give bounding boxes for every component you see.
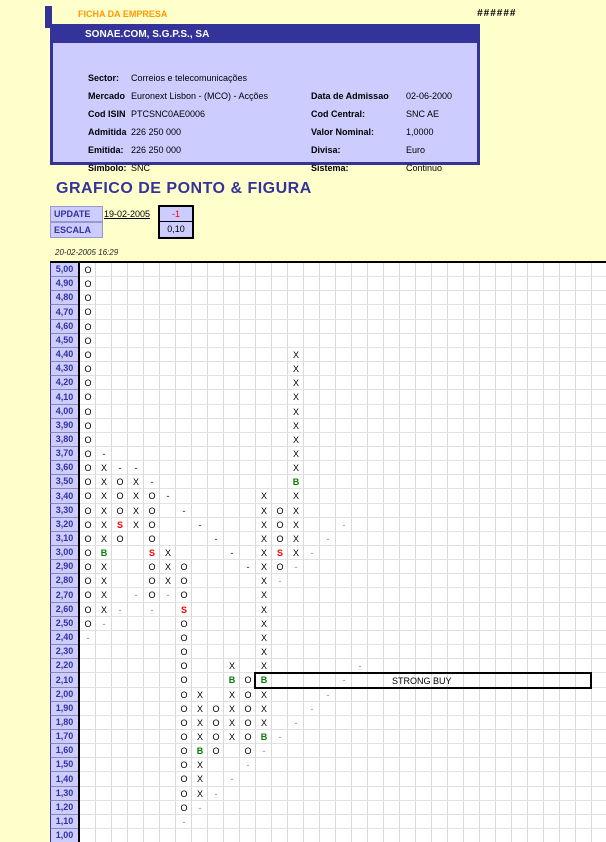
pf-symbol: O bbox=[208, 702, 224, 716]
parameter-box: -1 0,10 bbox=[158, 205, 194, 239]
price-tick-label: 1,20 bbox=[50, 801, 78, 815]
pf-symbol: X bbox=[192, 758, 208, 772]
pf-symbol: O bbox=[208, 744, 224, 758]
pf-symbol: O bbox=[80, 305, 96, 320]
price-tick-label: 2,10 bbox=[50, 673, 78, 688]
pf-symbol: X bbox=[256, 504, 272, 518]
pf-symbol: O bbox=[80, 546, 96, 560]
sell-signal-marker: S bbox=[112, 518, 128, 532]
trendline-dash: - bbox=[128, 588, 144, 603]
price-tick-label: 2,60 bbox=[50, 603, 78, 617]
trendline-dash: - bbox=[304, 702, 320, 716]
pf-symbol: O bbox=[176, 716, 192, 730]
price-tick-label: 3,50 bbox=[50, 475, 78, 489]
pf-symbol: O bbox=[176, 801, 192, 815]
trendline-dash: - bbox=[320, 688, 336, 702]
info-value-right: Euro bbox=[406, 145, 425, 155]
pf-symbol: X bbox=[96, 461, 112, 475]
sell-signal-marker: S bbox=[144, 546, 160, 560]
trendline-dash: - bbox=[208, 532, 224, 546]
pf-symbol: O bbox=[80, 362, 96, 376]
gridline-horizontal bbox=[80, 828, 606, 829]
trendline-dash: - bbox=[272, 730, 288, 744]
pf-symbol: O bbox=[176, 588, 192, 603]
info-value-right: SNC AE bbox=[406, 109, 439, 119]
update-date-value[interactable]: 19-02-2005 bbox=[104, 209, 150, 219]
info-value: Correios e telecomunicações bbox=[131, 73, 247, 83]
info-value-right: 1,0000 bbox=[406, 127, 434, 137]
pf-symbol: O bbox=[144, 532, 160, 546]
price-tick-label: 3,30 bbox=[50, 504, 78, 518]
price-tick-label: 1,10 bbox=[50, 815, 78, 829]
info-value: 226 250 000 bbox=[131, 145, 181, 155]
pf-symbol: O bbox=[80, 489, 96, 504]
pf-symbol: O bbox=[80, 291, 96, 305]
pf-symbol: X bbox=[96, 603, 112, 617]
pf-symbol: O bbox=[80, 532, 96, 546]
pf-symbol: O bbox=[80, 320, 96, 334]
pf-symbol: X bbox=[128, 518, 144, 532]
gridline-horizontal bbox=[80, 771, 606, 772]
page-title: GRAFICO DE PONTO & FIGURA bbox=[56, 180, 312, 198]
trendline-dash: - bbox=[96, 447, 112, 461]
gridline-horizontal bbox=[80, 757, 606, 758]
gridline-horizontal bbox=[80, 460, 606, 461]
info-label: Emitida: bbox=[88, 145, 124, 155]
pf-symbol: X bbox=[256, 716, 272, 730]
pf-symbol: X bbox=[128, 475, 144, 489]
price-tick-label: 2,00 bbox=[50, 688, 78, 702]
pf-symbol: X bbox=[192, 772, 208, 787]
pf-symbol: X bbox=[288, 433, 304, 447]
pf-symbol: X bbox=[256, 532, 272, 546]
pf-symbol: O bbox=[80, 588, 96, 603]
price-tick-label: 1,50 bbox=[50, 758, 78, 772]
update-offset-cell[interactable]: -1 bbox=[160, 207, 192, 222]
gridline-horizontal bbox=[80, 800, 606, 801]
price-tick-label: 3,90 bbox=[50, 419, 78, 433]
cell-overflow-hashes: ###### bbox=[477, 8, 516, 19]
trendline-dash: - bbox=[304, 546, 320, 560]
chart-top-border bbox=[50, 261, 606, 263]
trendline-dash: - bbox=[128, 461, 144, 475]
pf-symbol: O bbox=[80, 447, 96, 461]
pf-symbol: X bbox=[96, 475, 112, 489]
pf-symbol: X bbox=[224, 730, 240, 744]
pf-symbol: O bbox=[144, 560, 160, 574]
info-label-right: Sistema: bbox=[311, 163, 349, 173]
pf-symbol: O bbox=[112, 532, 128, 546]
pf-symbol: X bbox=[288, 546, 304, 560]
price-tick-label: 2,40 bbox=[50, 631, 78, 645]
spreadsheet-page: { "header": { "corner_label": "FICHA DA … bbox=[0, 0, 606, 842]
pf-symbol: O bbox=[144, 518, 160, 532]
pf-symbol: O bbox=[80, 475, 96, 489]
pf-symbol: X bbox=[288, 376, 304, 390]
pf-symbol: X bbox=[256, 702, 272, 716]
pf-symbol: O bbox=[112, 504, 128, 518]
pf-symbol: O bbox=[144, 588, 160, 603]
sell-signal-marker: S bbox=[176, 603, 192, 617]
pf-symbol: O bbox=[80, 419, 96, 433]
pf-symbol: O bbox=[176, 574, 192, 588]
pf-symbol: O bbox=[176, 617, 192, 631]
trendline-dash: - bbox=[112, 603, 128, 617]
strong-buy-label: STRONG BUY bbox=[392, 676, 452, 686]
pf-symbol: O bbox=[80, 263, 96, 277]
pf-symbol: X bbox=[256, 645, 272, 659]
trendline-dash: - bbox=[176, 815, 192, 829]
pf-symbol: O bbox=[80, 560, 96, 574]
escala-value-cell[interactable]: 0,10 bbox=[160, 222, 192, 237]
info-value-right: 02-06-2000 bbox=[406, 91, 452, 101]
point-figure-chart: 5,004,904,804,704,604,504,404,304,204,10… bbox=[50, 261, 606, 842]
buy-signal-marker: B bbox=[192, 744, 208, 758]
pf-symbol: O bbox=[80, 504, 96, 518]
pf-symbol: X bbox=[96, 574, 112, 588]
info-label: Simbolo: bbox=[88, 163, 127, 173]
pf-symbol: X bbox=[288, 461, 304, 475]
trendline-dash: - bbox=[272, 574, 288, 588]
pf-symbol: X bbox=[256, 560, 272, 574]
pf-symbol: X bbox=[192, 787, 208, 801]
trendline-dash: - bbox=[96, 617, 112, 631]
price-tick-label: 2,20 bbox=[50, 659, 78, 673]
pf-symbol: X bbox=[256, 489, 272, 504]
pf-symbol: X bbox=[288, 518, 304, 532]
gridline-horizontal bbox=[80, 786, 606, 787]
trendline-dash: - bbox=[352, 659, 368, 673]
gridline-horizontal bbox=[80, 404, 606, 405]
trendline-dash: - bbox=[192, 518, 208, 532]
pf-symbol: O bbox=[80, 518, 96, 532]
trendline-dash: - bbox=[192, 801, 208, 815]
pf-symbol: O bbox=[144, 489, 160, 504]
pf-symbol: X bbox=[96, 489, 112, 504]
price-tick-label: 4,10 bbox=[50, 390, 78, 405]
pf-symbol: O bbox=[176, 673, 192, 688]
pf-symbol: X bbox=[224, 702, 240, 716]
trendline-dash: - bbox=[224, 546, 240, 560]
price-tick-label: 5,00 bbox=[50, 263, 78, 277]
pf-symbol: O bbox=[144, 574, 160, 588]
pf-symbol: X bbox=[256, 574, 272, 588]
pf-symbol: O bbox=[144, 504, 160, 518]
pf-symbol: X bbox=[288, 447, 304, 461]
price-tick-label: 4,50 bbox=[50, 334, 78, 348]
pf-symbol: X bbox=[256, 659, 272, 673]
price-tick-label: 4,20 bbox=[50, 376, 78, 390]
gridline-horizontal bbox=[80, 446, 606, 447]
price-tick-label: 3,40 bbox=[50, 489, 78, 504]
price-tick-label: 2,50 bbox=[50, 617, 78, 631]
price-tick-label: 3,80 bbox=[50, 433, 78, 447]
company-info-card: SONAE.COM, S.G.P.S., SA Sector:Correios … bbox=[50, 24, 480, 165]
pf-symbol: O bbox=[176, 730, 192, 744]
pf-symbol: X bbox=[256, 631, 272, 645]
price-tick-label: 2,70 bbox=[50, 588, 78, 603]
pf-symbol: X bbox=[256, 588, 272, 603]
gridline-horizontal bbox=[80, 644, 606, 645]
price-tick-label: 4,60 bbox=[50, 320, 78, 334]
axis-divider bbox=[78, 261, 80, 842]
strong-buy-annotation-box: STRONG BUY bbox=[254, 672, 592, 689]
info-label: Admitida bbox=[88, 127, 127, 137]
price-tick-label: 3,60 bbox=[50, 461, 78, 475]
pf-symbol: O bbox=[272, 532, 288, 546]
info-label: Cod ISIN bbox=[88, 109, 126, 119]
gridline-horizontal bbox=[80, 347, 606, 348]
pf-symbol: O bbox=[272, 560, 288, 574]
price-tick-label: 4,40 bbox=[50, 348, 78, 362]
trendline-dash: - bbox=[80, 631, 96, 645]
pf-symbol: O bbox=[176, 560, 192, 574]
trendline-dash: - bbox=[240, 560, 256, 574]
info-label-right: Data de Admissao bbox=[311, 91, 389, 101]
info-value: SNC bbox=[131, 163, 150, 173]
chart-timestamp: 20-02-2005 16:29 bbox=[55, 248, 118, 257]
pf-symbol: O bbox=[240, 730, 256, 744]
pf-symbol: X bbox=[256, 518, 272, 532]
pf-symbol: O bbox=[80, 334, 96, 348]
pf-symbol: X bbox=[192, 730, 208, 744]
pf-symbol: O bbox=[80, 405, 96, 419]
pf-symbol: X bbox=[96, 532, 112, 546]
price-tick-label: 1,70 bbox=[50, 730, 78, 744]
gridline-horizontal bbox=[80, 319, 606, 320]
price-tick-label: 1,40 bbox=[50, 772, 78, 787]
trendline-dash: - bbox=[288, 716, 304, 730]
info-label-right: Valor Nominal: bbox=[311, 127, 374, 137]
pf-symbol: X bbox=[288, 489, 304, 504]
pf-symbol: O bbox=[112, 475, 128, 489]
sheet-section-label: FICHA DA EMPRESA bbox=[78, 9, 167, 19]
gridline-horizontal bbox=[80, 304, 606, 305]
pf-symbol: X bbox=[288, 532, 304, 546]
trendline-dash: - bbox=[256, 744, 272, 758]
price-tick-label: 3,70 bbox=[50, 447, 78, 461]
pf-symbol: O bbox=[176, 772, 192, 787]
price-tick-label: 1,80 bbox=[50, 716, 78, 730]
gridline-horizontal bbox=[80, 715, 606, 716]
pf-symbol: O bbox=[208, 730, 224, 744]
price-tick-label: 3,00 bbox=[50, 546, 78, 560]
pf-symbol: O bbox=[112, 489, 128, 504]
buy-signal-marker: B bbox=[224, 673, 240, 688]
pf-symbol: X bbox=[160, 546, 176, 560]
pf-symbol: O bbox=[80, 348, 96, 362]
gridline-horizontal bbox=[80, 375, 606, 376]
pf-symbol: O bbox=[240, 688, 256, 702]
pf-symbol: X bbox=[256, 546, 272, 560]
escala-label-cell: ESCALA bbox=[50, 222, 103, 238]
buy-signal-marker: B bbox=[96, 546, 112, 560]
pf-symbol: X bbox=[192, 688, 208, 702]
pf-symbol: X bbox=[288, 419, 304, 433]
pf-symbol: O bbox=[272, 504, 288, 518]
gridline-horizontal bbox=[80, 658, 606, 659]
info-label-right: Divisa: bbox=[311, 145, 341, 155]
price-tick-label: 4,00 bbox=[50, 405, 78, 419]
price-tick-label: 2,30 bbox=[50, 645, 78, 659]
trendline-dash: - bbox=[144, 603, 160, 617]
gridline-horizontal bbox=[80, 743, 606, 744]
gridline-horizontal bbox=[80, 389, 606, 390]
pf-symbol: O bbox=[176, 645, 192, 659]
price-tick-label: 2,90 bbox=[50, 560, 78, 574]
pf-symbol: X bbox=[256, 603, 272, 617]
pf-symbol: O bbox=[176, 744, 192, 758]
info-value-right: Continuo bbox=[406, 163, 442, 173]
pf-symbol: X bbox=[256, 688, 272, 702]
pf-symbol: O bbox=[176, 688, 192, 702]
trendline-dash: - bbox=[144, 475, 160, 489]
gridline-horizontal bbox=[80, 729, 606, 730]
pf-symbol: O bbox=[240, 702, 256, 716]
trendline-dash: - bbox=[208, 787, 224, 801]
info-label-right: Cod Central: bbox=[311, 109, 365, 119]
buy-signal-marker: B bbox=[256, 730, 272, 744]
gridline-horizontal bbox=[80, 432, 606, 433]
price-tick-label: 3,20 bbox=[50, 518, 78, 532]
trendline-dash: - bbox=[336, 518, 352, 532]
pf-symbol: X bbox=[160, 574, 176, 588]
pf-symbol: X bbox=[224, 659, 240, 673]
pf-symbol: O bbox=[80, 277, 96, 291]
gridline-horizontal bbox=[80, 630, 606, 631]
pf-symbol: O bbox=[272, 518, 288, 532]
pf-symbol: O bbox=[80, 390, 96, 405]
pf-symbol: O bbox=[176, 659, 192, 673]
update-label-cell: UPDATE bbox=[50, 206, 103, 222]
pf-symbol: X bbox=[96, 588, 112, 603]
gridline-horizontal bbox=[80, 418, 606, 419]
pf-symbol: O bbox=[80, 574, 96, 588]
price-tick-label: 1,00 bbox=[50, 829, 78, 842]
price-tick-label: 4,80 bbox=[50, 291, 78, 305]
trendline-dash: - bbox=[112, 461, 128, 475]
pf-symbol: X bbox=[160, 560, 176, 574]
info-label: Sector: bbox=[88, 73, 119, 83]
price-tick-label: 4,30 bbox=[50, 362, 78, 376]
pf-symbol: O bbox=[80, 617, 96, 631]
pf-symbol: X bbox=[288, 504, 304, 518]
info-value: 226 250 000 bbox=[131, 127, 181, 137]
price-tick-label: 1,30 bbox=[50, 787, 78, 801]
price-tick-label: 1,90 bbox=[50, 702, 78, 716]
pf-symbol: O bbox=[80, 461, 96, 475]
price-tick-label: 2,80 bbox=[50, 574, 78, 588]
pf-symbol: X bbox=[288, 405, 304, 419]
price-tick-label: 4,90 bbox=[50, 277, 78, 291]
info-value: PTCSNC0AE0006 bbox=[131, 109, 205, 119]
info-label: Mercado bbox=[88, 91, 125, 101]
trendline-dash: - bbox=[224, 772, 240, 787]
pf-symbol: X bbox=[256, 617, 272, 631]
trendline-dash: - bbox=[176, 504, 192, 518]
pf-symbol: X bbox=[96, 560, 112, 574]
pf-symbol: X bbox=[128, 504, 144, 518]
gridline-horizontal bbox=[80, 333, 606, 334]
pf-symbol: O bbox=[176, 787, 192, 801]
info-value: Euronext Lisbon - (MCO) - Acções bbox=[131, 91, 268, 101]
pf-symbol: X bbox=[288, 390, 304, 405]
pf-symbol: X bbox=[96, 504, 112, 518]
pf-symbol: O bbox=[176, 631, 192, 645]
price-tick-label: 3,10 bbox=[50, 532, 78, 546]
company-title-bar: SONAE.COM, S.G.P.S., SA bbox=[53, 27, 477, 43]
gridline-horizontal bbox=[80, 814, 606, 815]
pf-symbol: O bbox=[176, 702, 192, 716]
pf-symbol: X bbox=[224, 688, 240, 702]
price-tick-label: 4,70 bbox=[50, 305, 78, 320]
pf-symbol: O bbox=[80, 376, 96, 390]
gridline-horizontal bbox=[80, 701, 606, 702]
trendline-dash: - bbox=[288, 560, 304, 574]
trendline-dash: - bbox=[320, 532, 336, 546]
price-tick-label: 1,60 bbox=[50, 744, 78, 758]
gridline-horizontal bbox=[80, 276, 606, 277]
pf-symbol: O bbox=[240, 716, 256, 730]
pf-symbol: O bbox=[80, 603, 96, 617]
pf-symbol: X bbox=[224, 716, 240, 730]
pf-symbol: X bbox=[288, 348, 304, 362]
pf-symbol: X bbox=[192, 702, 208, 716]
sell-signal-marker: S bbox=[272, 546, 288, 560]
pf-symbol: X bbox=[192, 716, 208, 730]
pf-symbol: X bbox=[288, 362, 304, 376]
gridline-horizontal bbox=[80, 361, 606, 362]
pf-symbol: O bbox=[208, 716, 224, 730]
pf-symbol: O bbox=[240, 744, 256, 758]
pf-symbol: X bbox=[128, 489, 144, 504]
pf-symbol: O bbox=[176, 758, 192, 772]
trendline-dash: - bbox=[240, 758, 256, 772]
pf-symbol: X bbox=[96, 518, 112, 532]
pf-symbol: O bbox=[80, 433, 96, 447]
trendline-dash: - bbox=[160, 588, 176, 603]
gridline-horizontal bbox=[80, 290, 606, 291]
buy-signal-marker: B bbox=[288, 475, 304, 489]
trendline-dash: - bbox=[160, 489, 176, 504]
